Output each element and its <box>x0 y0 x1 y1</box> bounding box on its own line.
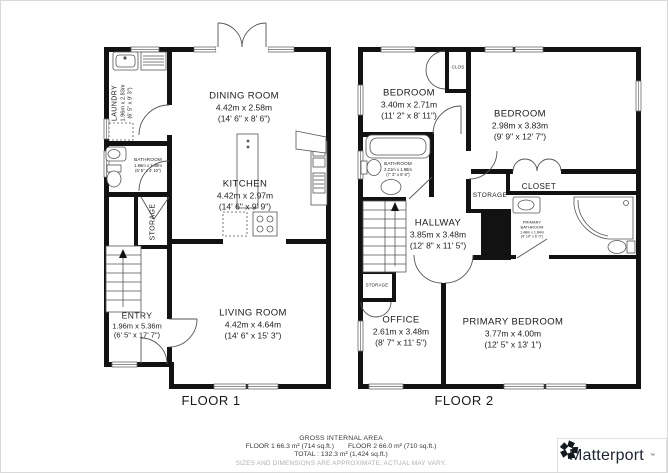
room-label-bathroom-f1: BATHROOM 1.96m x 1.49m (6' 5" x 4' 10") <box>134 157 162 173</box>
room-label-primary-bathroom: PRIMARY BATHROOM 1.48m x 1.84m (4' 10" x… <box>515 221 549 240</box>
floor2-area: FLOOR 2 66.0 m² (710 sq.ft.) <box>348 443 436 450</box>
footer-floor-areas: FLOOR 1 66.3 m² (714 sq.ft.) FLOOR 2 66.… <box>151 443 531 450</box>
room-label-dining-room: DINING ROOM 4.42m x 2.58m (14' 6" x 8' 6… <box>209 90 279 123</box>
room-label-office: OFFICE 2.61m x 3.48m (8' 7" x 11' 5") <box>373 314 429 347</box>
room-label-bathroom-f2: BATHROOM 2.21m x 1.98m (7' 3" x 6' 6") <box>384 161 412 177</box>
bathroom1-sink-icon <box>106 147 126 161</box>
room-label-storage-f1: STORAGE <box>150 204 159 241</box>
bathroom2-toilet-icon <box>361 160 381 176</box>
room-label-kitchen: KITCHEN 4.42m x 2.97m (14' 6" x 9' 9") <box>217 178 273 211</box>
floorplan-page: LAUNDRY 1.96m x 2.83m (6' 5" x 9' 3") DI… <box>0 0 668 473</box>
room-label-bedroom-left: BEDROOM 3.40m x 2.71m (11' 2" x 8' 11") <box>381 87 437 120</box>
room-label-laundry: LAUNDRY 1.96m x 2.83m (6' 5" x 9' 3") <box>112 85 135 122</box>
matterport-wordmark: Matterport <box>569 447 644 465</box>
footer-title: GROSS INTERNAL AREA <box>151 435 531 442</box>
floor2-stairs-icon <box>363 201 406 272</box>
bathtub-icon <box>366 135 430 158</box>
room-label-hallway: HALLWAY 3.85m x 3.48m (12' 8" x 11' 5") <box>410 217 466 250</box>
bathroom1-toilet-icon <box>107 165 121 187</box>
shower-icon <box>574 197 633 239</box>
room-label-storage-lower: STORAGE <box>366 282 389 288</box>
footer-total-area: TOTAL : 132.3 m² (1,424 sq.ft.) <box>151 451 531 458</box>
room-label-closet: CLOSET <box>522 175 556 195</box>
washer-icon <box>141 52 166 70</box>
room-label-clos: CLOS <box>452 64 465 70</box>
floor2-label: FLOOR 2 <box>434 393 493 409</box>
room-label-entry: ENTRY 1.96m x 5.36m (6' 5" x 17' 7") <box>112 310 162 339</box>
dishwasher-icon <box>223 212 247 236</box>
floor1-stairs-icon <box>106 246 141 312</box>
floorplan-drawing <box>1 1 668 473</box>
footer-disclaimer: SIZES AND DIMENSIONS ARE APPROXIMATE, AC… <box>151 460 531 467</box>
stove-icon <box>253 212 277 236</box>
primary-toilet-icon <box>608 241 635 254</box>
matterport-logo: Matterport™ <box>557 438 667 473</box>
trademark-symbol: ™ <box>650 453 655 459</box>
room-label-storage-upper: STORAGE <box>473 192 507 200</box>
bathroom2-sink-icon <box>381 180 401 195</box>
floor1-area: FLOOR 1 66.3 m² (714 sq.ft.) <box>246 443 334 450</box>
gross-internal-area-note: GROSS INTERNAL AREA FLOOR 1 66.3 m² (714… <box>151 435 531 467</box>
room-label-primary-bedroom: PRIMARY BEDROOM 3.77m x 4.00m (12' 5" x … <box>463 316 564 349</box>
matterport-pinwheel-icon <box>558 439 580 461</box>
laundry-appliance-icon <box>109 123 133 140</box>
fridge-icon <box>296 131 326 153</box>
laundry-sink-icon <box>113 52 138 70</box>
room-label-bedroom-right: BEDROOM 2.98m x 3.83m (9' 9" x 12' 7") <box>492 108 548 141</box>
floor1-label: FLOOR 1 <box>181 393 240 409</box>
primary-bathroom-sink-icon <box>513 197 540 213</box>
room-label-living-room: LIVING ROOM 4.42m x 4.64m (14' 6" x 15' … <box>219 307 287 340</box>
